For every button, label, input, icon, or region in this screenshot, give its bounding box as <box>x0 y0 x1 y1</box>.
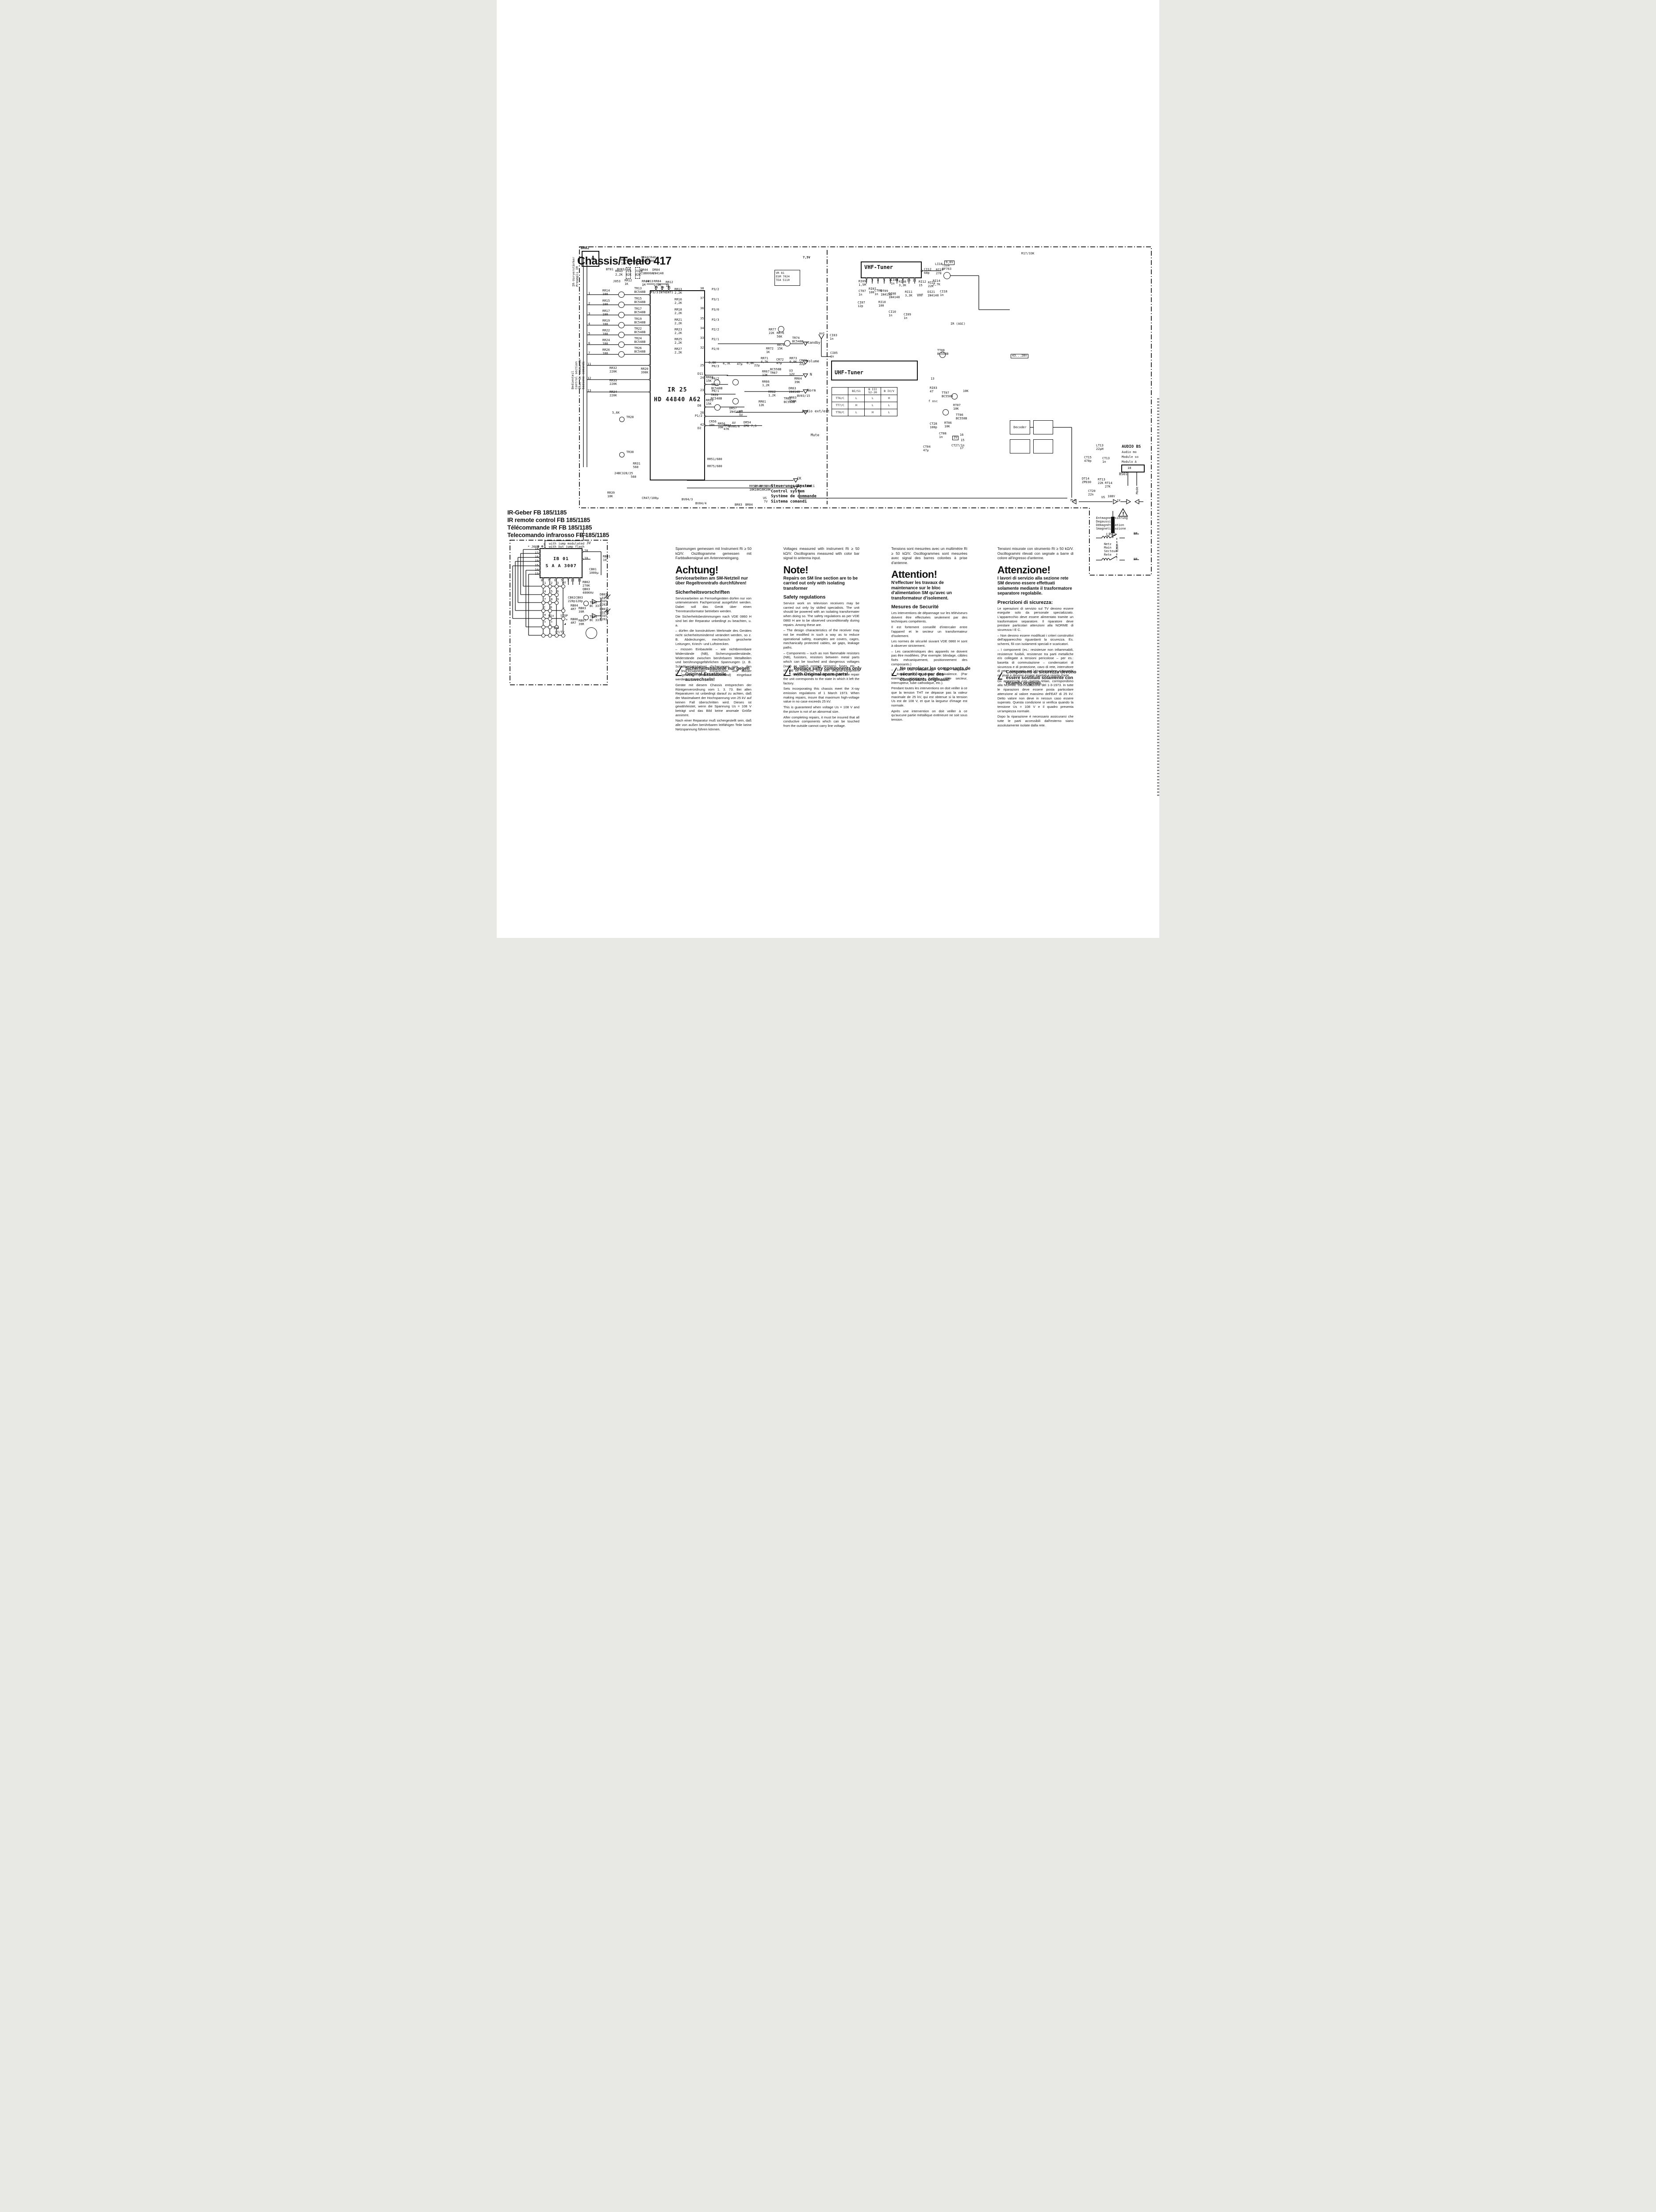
component-label: 19 <box>535 560 538 563</box>
paragraph: Les interventions de dépannage sur les t… <box>891 611 967 624</box>
schematic-circle <box>704 384 706 385</box>
svg-text:!: ! <box>681 669 682 676</box>
schematic-circle <box>732 398 739 404</box>
warning-text: Componenti di sicurezza devono essere so… <box>1006 669 1077 687</box>
paragraph: Sets incorporating this chassis meet the… <box>783 687 859 704</box>
schematic-circle <box>539 561 540 562</box>
scan-edge-noise <box>1157 398 1159 796</box>
component-label: 5 <box>883 279 885 283</box>
warning-text: Sicherheitsbauteile nur gegen Original-E… <box>685 665 755 683</box>
component-label: D8 <box>698 404 701 408</box>
component-label: CT07 1n <box>859 290 866 296</box>
schematic-circle <box>649 344 651 346</box>
component-label: RT14 27K <box>1105 482 1112 488</box>
function-box-a <box>1010 439 1030 453</box>
component-label: 25 <box>700 364 704 368</box>
component-label: Audio ext/est <box>802 410 830 413</box>
component-label: 15 <box>535 564 538 568</box>
section-title-fr: Mesures de Securité <box>891 604 967 610</box>
schematic-circle <box>732 379 739 385</box>
component-label: Ant <box>819 332 825 336</box>
component-label: RB03 39R <box>579 607 586 614</box>
component-label: P3/2 <box>712 288 719 292</box>
component-label: RR32 220K <box>609 367 617 373</box>
component-label: 3V <box>586 541 591 545</box>
component-label: DT14 ZPD30 <box>1082 477 1091 484</box>
component-label: 36 <box>700 307 704 311</box>
component-label: RR17 180 <box>602 310 610 316</box>
warning-de: ! Sicherheitsbauteile nur gegen Original… <box>675 665 755 683</box>
component-label: Volume <box>806 360 819 363</box>
component-label: Smagnetizzazione <box>1096 527 1126 531</box>
schematic-circle <box>704 415 706 417</box>
component-label: 34 <box>700 327 704 330</box>
component-label: Mute <box>811 434 819 437</box>
component-label: RR51/680 <box>707 458 722 461</box>
component-label: 6 <box>557 590 559 594</box>
safety-column-de: Spannungen gemessen mit Instrument Ri ≥ … <box>675 547 751 685</box>
component-label: CR72 47µ <box>776 358 784 365</box>
component-label: RR74 15K <box>777 344 785 350</box>
component-label: BV03/15 <box>797 395 810 398</box>
control-section-label: Bedienteil Control section Bloc de comma… <box>571 360 585 389</box>
schematic-circle <box>561 584 565 588</box>
band-table-header <box>832 388 848 395</box>
component-label: ◢ <box>564 622 566 626</box>
component-label: VHF <box>917 294 923 297</box>
component-label: 30 <box>660 286 664 290</box>
safety-column-fr: Tensions sont mesurées avec un multimètr… <box>891 547 967 685</box>
band-table-cell: L <box>865 402 881 409</box>
component-label: 6,8K <box>747 362 754 365</box>
component-label: 12 <box>571 579 574 583</box>
band-table-cell: L <box>848 409 865 416</box>
schematic-circle <box>618 292 625 298</box>
component-label: P3/3 <box>651 291 658 295</box>
schematic-circle <box>618 342 625 348</box>
warning-it: ! Componenti di sicurezza devono essere … <box>997 669 1077 687</box>
component-label: 23 <box>700 389 704 392</box>
component-label: RR39 10K <box>607 492 615 498</box>
component-label: TR26 BC548B <box>634 347 645 353</box>
component-label: UB 5V <box>739 410 743 417</box>
component-label: 18 <box>1127 467 1131 470</box>
component-label: 17 <box>535 552 538 555</box>
component-label: f osc <box>928 400 938 403</box>
component-label: RR16 2,2K <box>675 298 682 305</box>
band-table-header: BI/S1 <box>848 388 865 395</box>
component-label: 100 <box>553 627 559 630</box>
subheading-de: Servicearbeiten am SM-Netzteil nur über … <box>675 576 751 586</box>
component-label: 18 <box>535 548 538 551</box>
component-label: 3 <box>588 312 590 316</box>
warning-text: Replace safty components only with Origi… <box>794 665 863 677</box>
component-label: TR17 BC548B <box>634 307 645 314</box>
component-label: CR73 22µ <box>799 359 807 366</box>
intro-fr: Tensions sont mesurées avec un multimètr… <box>891 547 967 565</box>
band-table-cell: H <box>865 409 881 416</box>
safety-column-en: Voltages measured with instrument Ri ≥ 5… <box>783 547 859 685</box>
schematic-circle <box>704 393 706 395</box>
control-system-line: Système de commande <box>771 494 816 499</box>
band-table-cell: H <box>848 402 865 409</box>
paragraph: This is guaranteed when voltage Us = 108… <box>783 705 859 714</box>
component-label: 10 <box>907 279 910 283</box>
paragraph: – Non devono essere modificati i criteri… <box>997 634 1073 646</box>
component-label: TB01 BC 337 <box>590 615 601 622</box>
component-label: P2/3 <box>712 319 719 322</box>
component-label: CI09 1n <box>904 313 911 320</box>
component-label: US <box>1101 496 1105 499</box>
component-label: 11 <box>912 279 916 283</box>
component-label: BV06/8 <box>728 425 740 429</box>
component-label: 37 <box>700 297 704 300</box>
component-label: J15 82K <box>626 270 632 276</box>
component-label: RR64 39K <box>794 377 802 384</box>
paragraph: Le operazioni di servizio sul TV devono … <box>997 607 1073 632</box>
component-label: PLE <box>1070 499 1076 503</box>
component-label: TR74 BC548B <box>792 337 803 343</box>
component-label: N <box>810 373 812 376</box>
component-label: QR44 CSB800A <box>640 269 654 275</box>
component-label: 24BC328/25 <box>614 472 633 476</box>
band-table-cell: TT6/C <box>832 395 848 402</box>
paragraph: After completing repairs, it must be ins… <box>783 715 859 728</box>
band-table-cell: L <box>848 395 865 402</box>
component-label: 10 <box>584 557 588 561</box>
component-label: TT06 BC558B <box>956 414 967 420</box>
component-label: Norm <box>807 389 816 392</box>
schematic-circle <box>539 553 540 554</box>
component-label: BP <box>1134 532 1137 536</box>
schematic-circle <box>784 340 790 346</box>
component-label: 0 <box>550 606 552 610</box>
paragraph: – The design characteristics of the rece… <box>783 628 859 650</box>
component-label: Data/dati <box>796 484 815 488</box>
component-label: J0S3 <box>646 280 653 284</box>
schematic-circle <box>649 379 651 380</box>
remote-header-it: Telecomando infrarosso FB 185/1185 <box>507 532 609 538</box>
component-label: + <box>566 618 567 622</box>
component-label: STOP <box>560 614 568 618</box>
component-label: 6 <box>554 579 556 583</box>
paragraph: Il est fortement conseillé d'intercaler … <box>891 625 967 638</box>
component-label: P1/2 <box>695 415 702 418</box>
warning-triangle-icon: ! <box>783 665 790 676</box>
component-label: RI09 1,5M <box>859 280 866 287</box>
component-label: CB01 1000µ <box>589 568 598 575</box>
audio-bs-connector-box <box>1121 465 1145 472</box>
schematic-circle <box>618 312 625 318</box>
schematic-circle <box>649 365 651 366</box>
remote-header-de: IR-Geber FB 185/1185 <box>507 509 567 516</box>
component-label: DB01 LD271 TSUS 5202 <box>600 608 609 621</box>
component-label: RR76 56K <box>777 332 784 338</box>
schematic-circle <box>586 627 597 639</box>
component-label: RI14 2,7K <box>933 280 940 286</box>
component-label: CT13 1n <box>1102 457 1110 464</box>
component-label: DI08 1N4148 <box>889 292 900 299</box>
component-label: RI11 3,3K <box>905 291 912 297</box>
component-label: RT07 10K <box>953 404 961 411</box>
component-label: BV04/4 <box>695 502 706 506</box>
component-label: 108V <box>1108 495 1115 499</box>
component-label: RR61 12K <box>759 400 766 407</box>
component-label: 7 <box>544 598 546 602</box>
component-label: 9 <box>920 270 922 274</box>
component-label: CT04 47µ <box>923 445 931 452</box>
component-label: CB02 220p <box>568 596 575 603</box>
component-label: TR13 BC548B <box>634 287 645 294</box>
warning-text: Ne remplacer les composants de sécurité … <box>900 665 971 683</box>
component-label: Mix <box>548 614 554 618</box>
component-label: 4 <box>588 323 590 326</box>
paragraph: Après une intervention on doit veiller à… <box>891 709 967 722</box>
component-label: DR84 1N4148 <box>652 269 663 275</box>
component-label: 31 <box>667 286 671 290</box>
schematic-circle <box>704 406 706 408</box>
component-label: RI08 3,3K <box>899 280 906 287</box>
component-label: 2 <box>551 582 552 585</box>
component-label: CT08 1n <box>939 432 947 439</box>
component-label: CI12 68p <box>924 268 931 275</box>
component-label: RB07 39R <box>579 619 586 626</box>
component-label: RR25 2,2K <box>675 338 682 345</box>
component-label: RT06 10K <box>944 422 952 428</box>
component-label: 20 <box>584 549 588 553</box>
component-label: RB06 4R7 <box>571 618 578 625</box>
component-label: RR77 22K <box>769 328 776 335</box>
component-label: 8 <box>541 579 543 583</box>
schematic-circle <box>582 558 583 560</box>
paragraph: Pendant toutes les interventions on doit… <box>891 686 967 708</box>
component-label: RR62 1,2K <box>768 391 776 397</box>
component-label: Mode <box>1136 487 1139 494</box>
component-label: 33 <box>700 337 704 340</box>
component-label: RR49 10K <box>765 485 773 492</box>
component-label: RR23 2,2K <box>675 328 682 335</box>
if-ic-box: VR 81 ESM 7024 TEA 5110 <box>774 270 800 286</box>
component-label: 2 <box>588 302 590 306</box>
component-label: 1 <box>567 579 569 583</box>
component-label: TI16 BF763 <box>942 264 951 271</box>
heading-en: Note! <box>783 565 859 575</box>
component-label: TR38 <box>626 451 634 454</box>
component-label: 1 <box>588 292 590 296</box>
component-label: BP <box>1134 558 1137 561</box>
component-label: with out jump flash <box>549 545 584 549</box>
ic-ir25-line2: HD 44840 A62 <box>651 396 704 403</box>
section-title-it: Precrizioni di sicurezza: <box>997 600 1073 605</box>
component-label: RR19 180 <box>602 319 610 326</box>
ic-ir25-line1: IR 25 <box>651 386 704 394</box>
band-table-cell: TT8/C <box>832 409 848 416</box>
subheading-fr: N'effectuer les travaux de maintenance s… <box>891 580 967 601</box>
component-label: RR33 220K <box>609 379 617 386</box>
component-label: 15 <box>961 439 964 442</box>
component-label: 5 <box>551 590 552 594</box>
schematic-circle <box>539 573 540 575</box>
vhf-tuner-label: VHF-Tuner <box>862 262 921 270</box>
component-label: 13 <box>931 377 934 381</box>
paragraph: Service work on television receivers may… <box>783 601 859 627</box>
warning-triangle-power: ! <box>1119 509 1127 517</box>
component-label: TR15 BC548B <box>634 297 645 304</box>
component-label: 5,6K <box>612 411 620 415</box>
component-label: 16 <box>535 556 538 559</box>
component-label: RR15 180 <box>602 300 610 306</box>
schematic-circle <box>649 391 651 393</box>
component-label: BT01 <box>606 268 613 272</box>
schematic-circle <box>539 557 540 558</box>
warning-fr: ! Ne remplacer les composants de sécurit… <box>891 665 971 683</box>
component-label: AV <box>562 581 566 585</box>
uhf-tuner-label: UHF-Tuner <box>832 361 917 376</box>
component-label: 4 <box>544 590 546 594</box>
component-label: RR24 180 <box>602 339 610 346</box>
component-label: 47µ <box>737 363 743 366</box>
component-label: J053 <box>613 280 621 284</box>
component-label: CR44 100p <box>641 256 648 263</box>
component-label: RR13 2,2K <box>675 288 682 295</box>
component-label: RI10 100 <box>878 301 886 307</box>
band-table-header: B III S2-20 <box>865 388 881 395</box>
schematic-circle <box>649 324 651 326</box>
component-label: RB04 4R7 <box>571 604 578 611</box>
component-label: ≡ <box>544 614 546 617</box>
component-label: RR26 180 <box>602 349 610 355</box>
component-label: P2/0 <box>712 348 719 351</box>
component-label: RR72 1K <box>766 347 774 354</box>
component-label: RR14 180 <box>602 289 610 296</box>
component-label: 9,6V <box>944 261 954 265</box>
component-label: LT13 22µH <box>1096 444 1104 451</box>
component-label: INT0 <box>659 291 666 295</box>
component-label: INT1 <box>666 291 673 295</box>
component-label: D11 <box>698 373 703 376</box>
component-label: BS01 <box>1119 472 1127 476</box>
component-label: 6 <box>588 342 590 346</box>
component-label: Audio mo <box>1122 451 1137 454</box>
component-label: 3 <box>557 582 559 585</box>
component-label: 1 <box>544 582 546 585</box>
paragraph: – dürfen die konstruktiven Merkmale des … <box>675 629 751 646</box>
component-label: TT08 BC558B <box>937 349 948 356</box>
schematic-circle <box>618 351 625 357</box>
component-label: RI03 47 <box>930 387 937 393</box>
warning-triangle-icon: ! <box>675 665 682 676</box>
component-label: RR21 2,2K <box>675 319 682 325</box>
component-label: CI07 12p <box>858 301 865 308</box>
component-label: TB02 BC 337 <box>590 601 601 608</box>
schematic-circle <box>649 353 651 355</box>
component-label: CI18 1n <box>940 290 947 297</box>
component-label: U3 12V <box>789 369 795 376</box>
component-label: QB03 400KHz <box>583 588 594 595</box>
component-label: 9 <box>544 543 545 547</box>
component-label: CR56 10n <box>709 420 717 427</box>
component-label: LP02 <box>1106 534 1116 537</box>
schematic-circle <box>541 625 545 629</box>
schematic-circle <box>943 409 949 415</box>
schematic-circle <box>649 304 651 306</box>
component-label: RR68 15K <box>706 376 713 383</box>
warning-triangle-icon: ! <box>891 665 897 676</box>
component-label: 38 <box>700 287 704 291</box>
component-label: 4,7K <box>723 362 730 366</box>
component-label: RR66 1,2K <box>762 380 770 387</box>
warning-triangle-icon: ! <box>997 669 1002 680</box>
component-label: RB01 10 <box>603 555 610 562</box>
component-label: A <box>591 257 594 260</box>
component-label: DB02 LD271 TSUS 5202 <box>600 593 609 607</box>
heading-fr: Attention! <box>891 569 967 580</box>
component-label: Rete <box>1104 553 1112 557</box>
component-label: IR (AGC) <box>951 323 966 326</box>
intro-de: Spannungen gemessen mit Instrument Ri ≥ … <box>675 547 751 561</box>
schematic-circle <box>583 601 589 606</box>
component-label: Modulo A <box>1122 461 1137 464</box>
component-label: ☼ <box>550 624 552 627</box>
schematic-circle <box>539 565 540 567</box>
intro-en: Voltages measured with instrument Ri ≥ 5… <box>783 547 859 561</box>
component-label: CK <box>797 477 801 480</box>
band-table-cell: TT7/C <box>832 402 848 409</box>
band-table-cell: L <box>865 395 881 402</box>
component-label: 7 <box>548 579 549 583</box>
component-label: RR22 180 <box>602 329 610 336</box>
component-label: RR31 560 <box>633 462 640 469</box>
component-label: CT15 470p <box>1084 456 1092 463</box>
safety-column-it: Tensioni misurate con strumento Ri ≥ 50 … <box>997 547 1073 685</box>
component-label: 14 <box>535 568 538 572</box>
remote-header-en: IR remote control FB 185/1185 <box>507 517 590 523</box>
component-label: DR54 ZPD 7,5 <box>744 421 757 428</box>
component-label: 7 <box>588 352 590 355</box>
decoder-box: Decoder <box>1010 420 1030 434</box>
component-label: 22µ <box>754 364 760 368</box>
component-label: BC558B TR67 <box>770 368 781 375</box>
component-label: RR75/680 <box>707 465 722 469</box>
component-label: C <box>544 606 545 610</box>
schematic-page: ! Chassis/Telaio 417 IR 25 HD 44840 A62 … <box>497 0 1159 938</box>
component-label: 43...28V <box>1011 354 1028 358</box>
component-label: RR12 1K <box>625 279 632 286</box>
component-label: TR22 BC548B <box>634 327 645 334</box>
subheading-it: I lavori di servizio alla sezione rete S… <box>997 576 1073 596</box>
schematic-circle <box>541 545 543 547</box>
component-label: BR04 <box>745 503 753 507</box>
component-label: 12 <box>587 377 591 380</box>
schematic-circle <box>704 425 706 426</box>
pll-box <box>1033 420 1053 434</box>
uhf-tuner-box: UHF-Tuner <box>831 361 918 380</box>
component-label: DI21 1N4148 <box>928 291 939 297</box>
component-label: 4 <box>877 279 879 283</box>
component-label: CT28 100p <box>930 422 937 429</box>
heading-it: Attenzione! <box>997 565 1073 575</box>
component-label: 39 <box>654 286 658 290</box>
schematic-circle <box>619 417 625 422</box>
paragraph: Les normes de sécurité siuvant VDE 0860 … <box>891 639 967 648</box>
component-label: 17 <box>960 447 963 450</box>
component-label: 2V <box>952 436 958 440</box>
schematic-circle <box>943 272 951 279</box>
component-label: CT20 22n <box>1088 490 1096 496</box>
component-label: RR59 15K <box>706 399 713 406</box>
ir-preamp-label: IR-Vorverstärker Preampli IR <box>572 257 579 287</box>
component-label: standby <box>805 341 820 345</box>
